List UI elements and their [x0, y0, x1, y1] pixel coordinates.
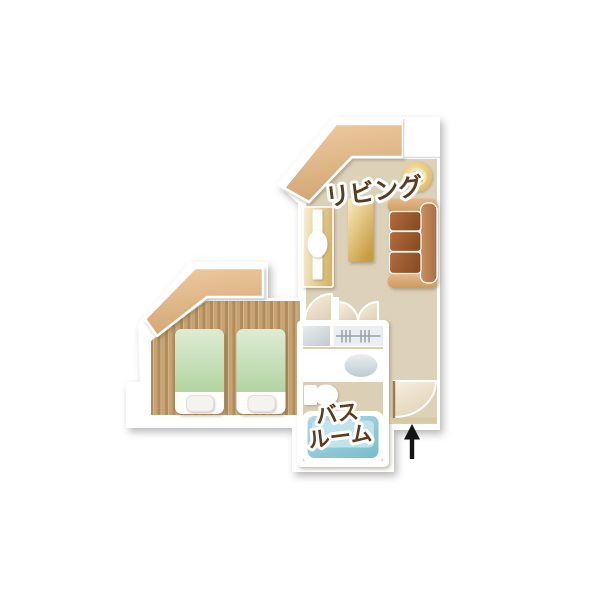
top-right-wall-notch [403, 117, 440, 158]
sofa-cushion [390, 212, 422, 232]
floor-plan-stage: リビング バス ルーム [0, 0, 600, 600]
bed-icon [175, 329, 224, 414]
sofa-cushion [390, 252, 422, 274]
bed-icon [237, 329, 286, 414]
sofa-backrest [421, 203, 438, 283]
tv-counter-icon [303, 207, 333, 287]
bed-pillow [248, 396, 275, 412]
luggage-shelf-icon [303, 326, 330, 346]
bed-pillow [187, 396, 214, 412]
sofa-icon [388, 199, 438, 289]
bed-duvet [237, 329, 286, 392]
hanger-closet-icon [334, 326, 384, 346]
washbasin-icon [303, 349, 383, 382]
entrance-threshold [390, 417, 437, 424]
bed-duvet [175, 329, 224, 392]
sofa-cushion [390, 232, 422, 252]
floor-plan-svg: リビング バス ルーム [0, 0, 600, 600]
stool-icon [308, 231, 328, 258]
